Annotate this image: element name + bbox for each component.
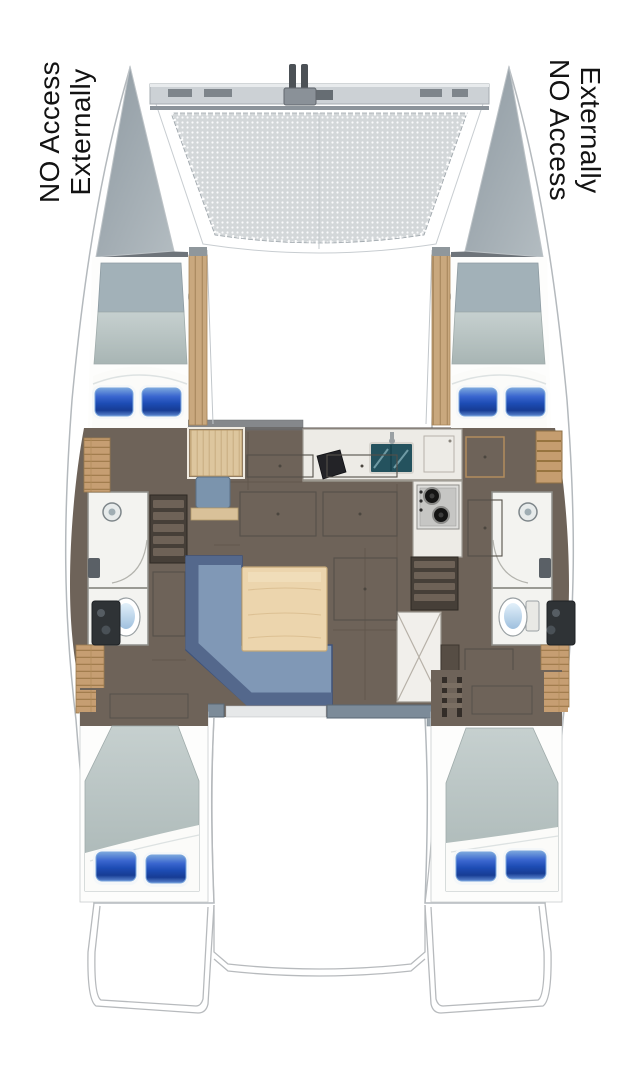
aft-crossbar (214, 905, 425, 976)
label-line: NO Access (544, 30, 575, 230)
chainplate-fitting-port (92, 601, 120, 645)
deck-ladder-starboard (536, 431, 562, 483)
label-no-access-port: NO Access Externally (32, 32, 98, 232)
side-strip-starboard (432, 255, 450, 425)
side-strip-port (189, 255, 207, 425)
nav-desk (190, 430, 242, 476)
transom-outlines (88, 903, 551, 1013)
catamaran-floorplan: NO Access Externally NO Access Externall… (0, 0, 639, 1080)
crossbeam (150, 64, 489, 110)
saloon-table (242, 567, 327, 651)
nav-shelf (191, 508, 238, 520)
stove (417, 485, 459, 529)
label-line: NO Access (34, 32, 65, 232)
aft-cabin-starboard (431, 670, 568, 902)
forward-cabin-port (88, 257, 188, 428)
chainplate-fitting-starboard (547, 601, 576, 645)
aft-cabin-port (78, 688, 208, 902)
bed-mattress (452, 312, 545, 364)
nav-seat (196, 477, 230, 508)
toilet (499, 598, 539, 636)
hinge-starboard (539, 558, 551, 578)
foredeck (189, 247, 450, 425)
label-line: Externally (575, 30, 606, 230)
hinge-port (88, 558, 100, 578)
label-line: Externally (65, 32, 96, 232)
forward-cabin-starboard (451, 257, 551, 428)
companionway-steps-port (150, 495, 187, 563)
bed-mattress (94, 312, 187, 364)
companionway-steps-starboard (411, 557, 458, 610)
trampoline (156, 104, 483, 253)
cockpit-door (226, 706, 326, 717)
label-no-access-starboard: NO Access Externally (542, 30, 608, 230)
